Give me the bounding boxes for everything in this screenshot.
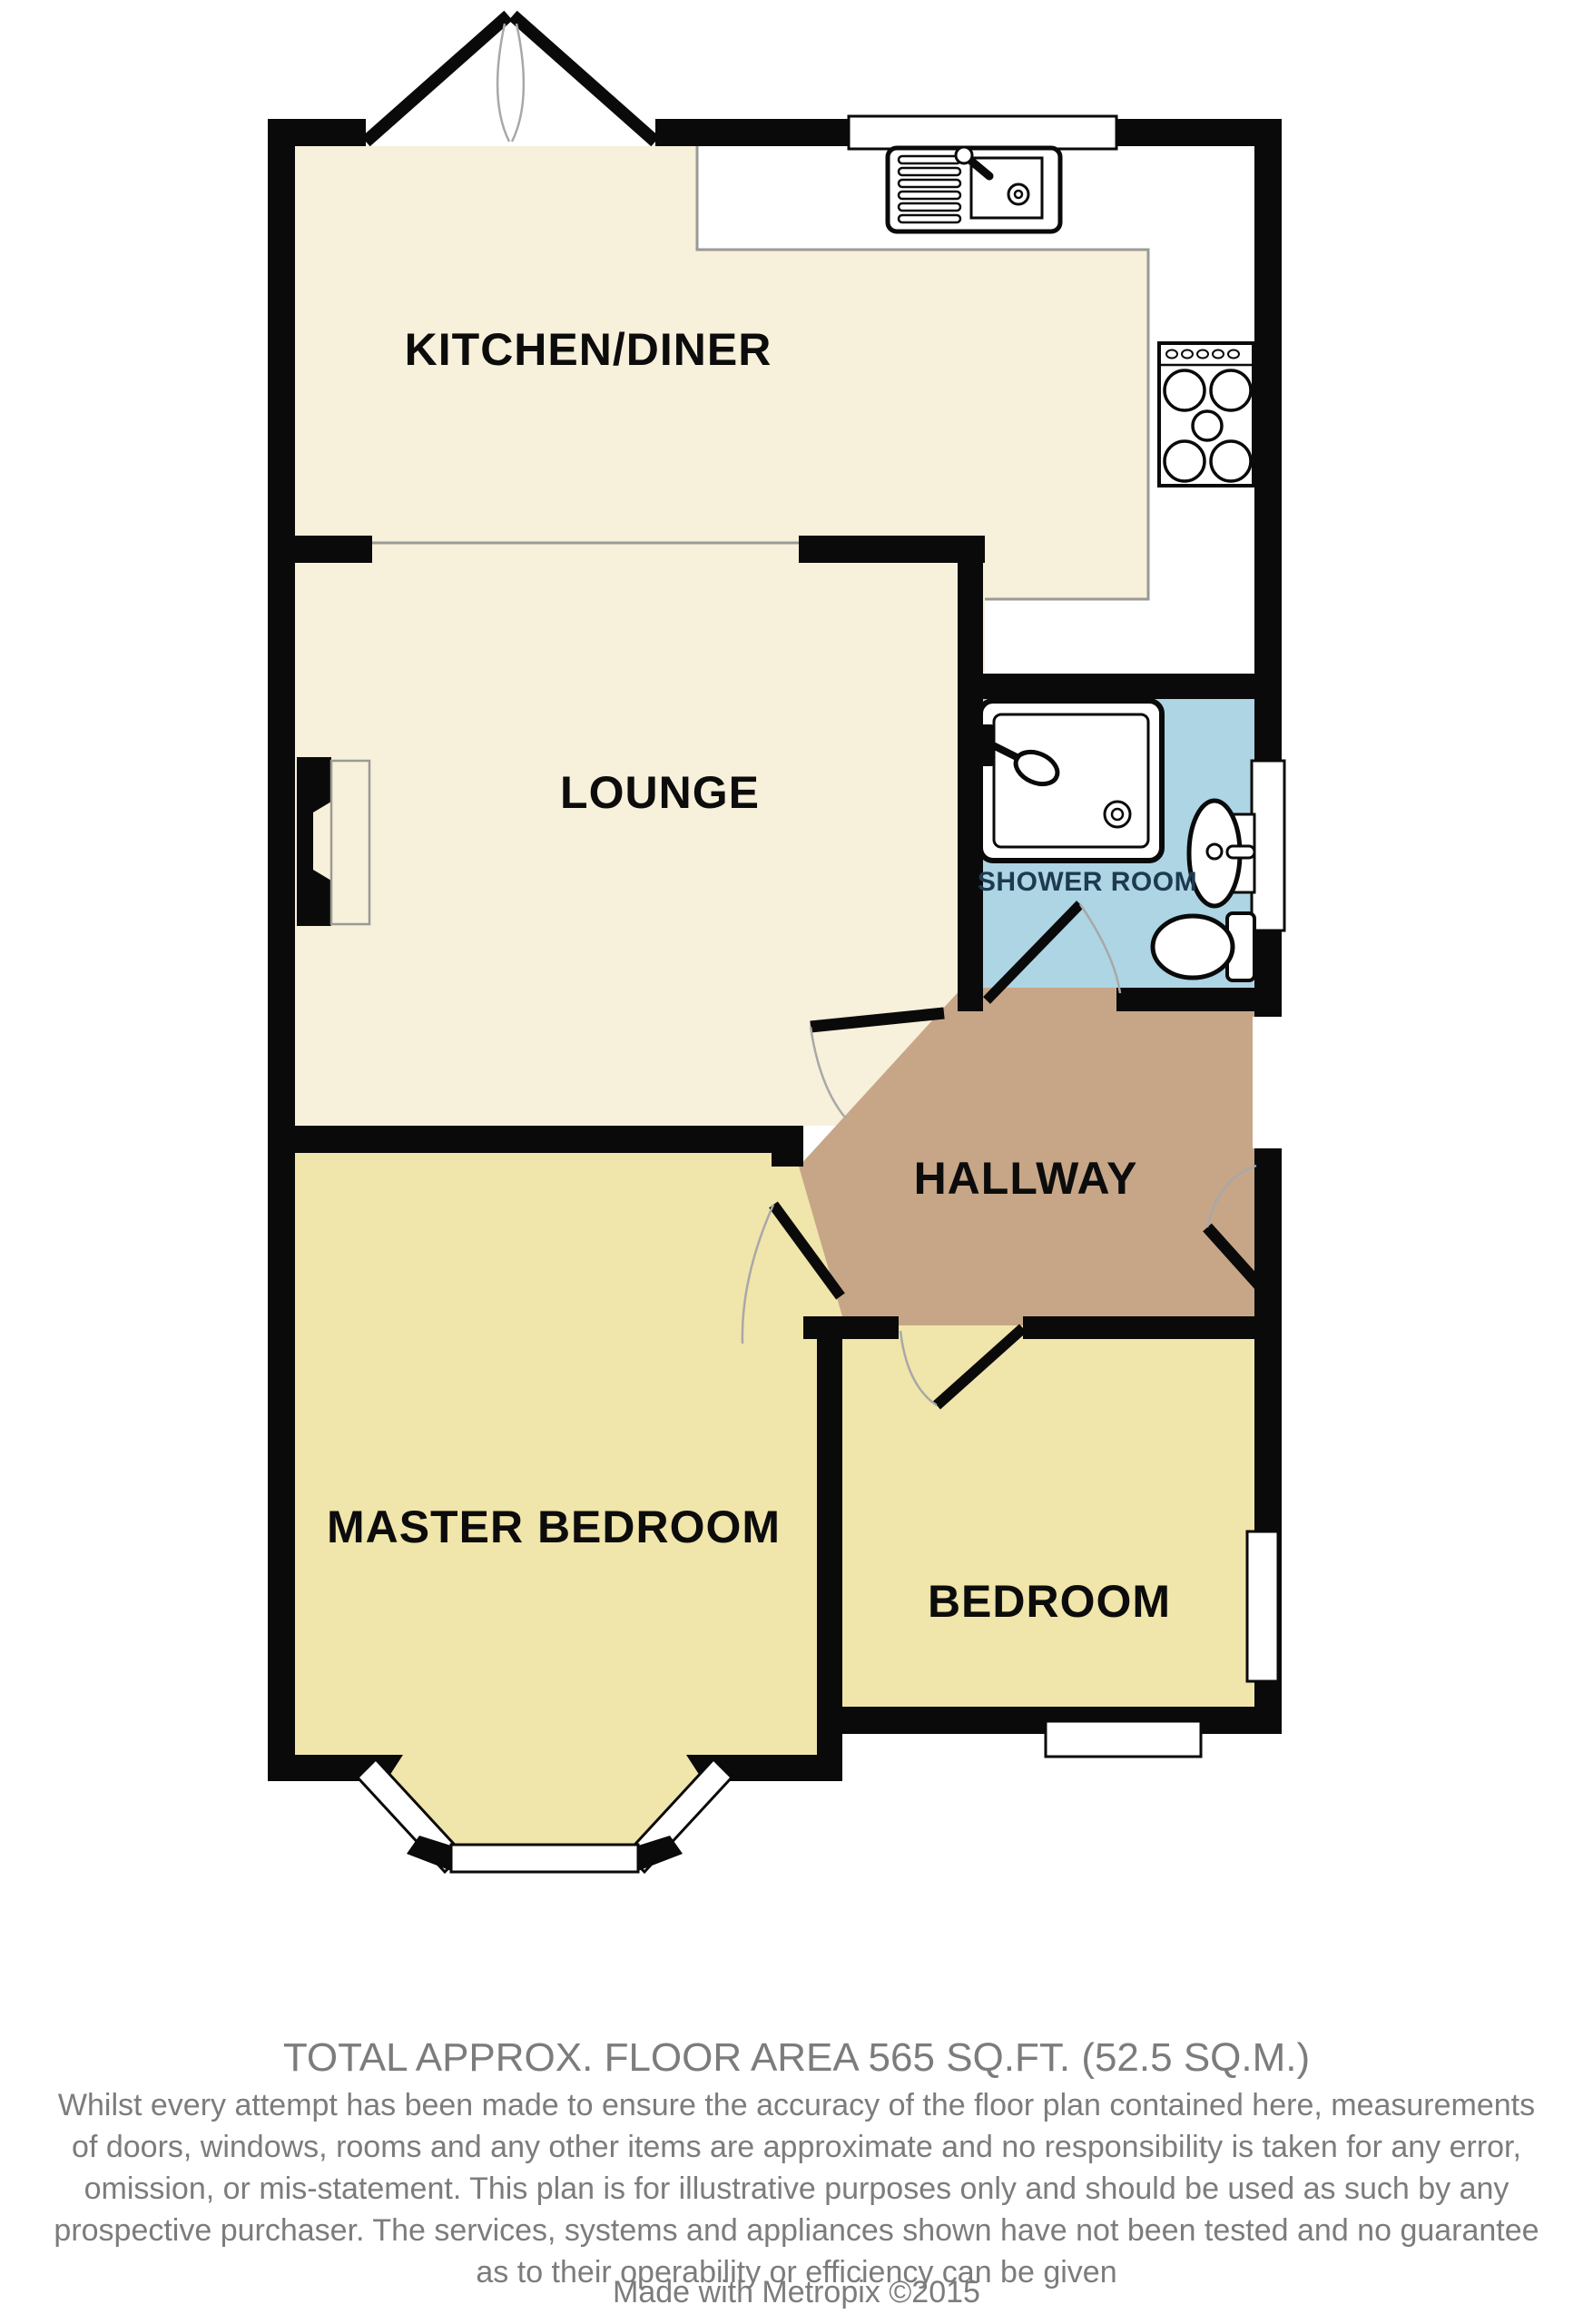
cooker-icon <box>1159 343 1254 486</box>
shower-tray-icon <box>980 701 1162 861</box>
kitchen-lounge-wall-stub <box>268 536 372 563</box>
fireplace-icon <box>297 757 369 926</box>
kitchen-label: KITCHEN/DINER <box>405 324 772 375</box>
disclaimer-line: prospective purchaser. The services, sys… <box>0 2210 1593 2251</box>
patio-door-leaf-left <box>366 15 508 142</box>
lounge-label: LOUNGE <box>560 767 760 818</box>
top-wall-mid <box>655 119 849 146</box>
shower-label: SHOWER ROOM <box>978 867 1197 897</box>
sink-icon <box>888 147 1060 231</box>
toilet-icon <box>1153 913 1254 980</box>
bedroom-bottom-window <box>1046 1721 1201 1757</box>
basin-icon <box>1189 801 1254 906</box>
patio-door-arc-left <box>497 24 509 142</box>
top-wall-right <box>1116 119 1282 146</box>
hallway-label: HALLWAY <box>914 1153 1138 1204</box>
front-door-opening <box>1253 1017 1283 1148</box>
bedroom-floor <box>842 1325 1254 1707</box>
bay-window-front <box>451 1845 638 1872</box>
patio-double-door <box>366 15 655 142</box>
kitchen-window <box>849 116 1116 149</box>
shower-top-wall <box>958 674 1282 699</box>
left-wall <box>268 119 295 1781</box>
lounge-master-wall <box>268 1126 803 1153</box>
floorplan-drawing: KITCHEN/DINER LOUNGE SHOWER ROOM HALLWAY… <box>0 0 1593 2024</box>
kitchen-lounge-wall <box>799 536 985 563</box>
total-area-text: TOTAL APPROX. FLOOR AREA 565 SQ.FT. (52.… <box>0 2035 1593 2081</box>
disclaimer-line: omission, or mis-statement. This plan is… <box>0 2168 1593 2210</box>
patio-door-leaf-right <box>513 15 655 142</box>
shower-window <box>1252 761 1284 931</box>
hallway-corner-stub <box>772 1126 803 1167</box>
bedroom-label: BEDROOM <box>928 1576 1171 1627</box>
patio-door-arc-right <box>512 24 524 142</box>
floorplan-page: KITCHEN/DINER LOUNGE SHOWER ROOM HALLWAY… <box>0 0 1593 2324</box>
bedroom-side-window <box>1247 1531 1278 1681</box>
disclaimer-line: of doors, windows, rooms and any other i… <box>0 2126 1593 2168</box>
top-wall-left <box>268 119 366 146</box>
disclaimer-text: Whilst every attempt has been made to en… <box>0 2084 1593 2293</box>
hallway-bottom-wall-right <box>1023 1316 1254 1339</box>
shower-bottom-wall <box>1116 988 1282 1011</box>
master-bedroom-label: MASTER BEDROOM <box>327 1502 781 1552</box>
metropix-credit-text: Made with Metropix ©2015 <box>0 2275 1593 2310</box>
disclaimer-line: Whilst every attempt has been made to en… <box>0 2084 1593 2126</box>
